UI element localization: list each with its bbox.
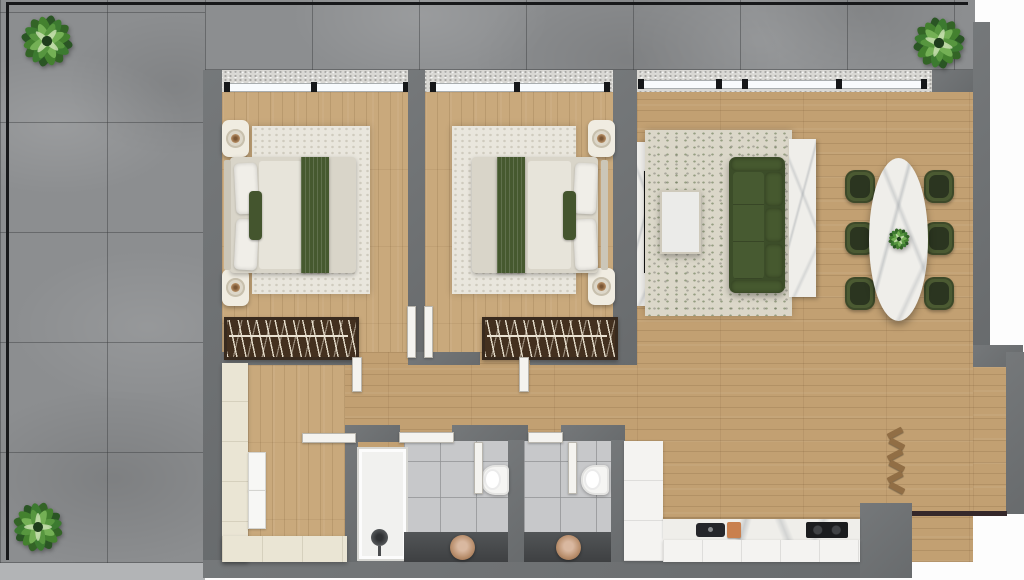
bathroom1-door [474, 442, 483, 494]
living-room-window [640, 80, 926, 89]
shower-stem [378, 546, 381, 556]
lamp-shade [597, 134, 606, 143]
chair-seat [850, 175, 870, 198]
chair-seat [929, 227, 949, 250]
ladder-plank [889, 460, 906, 473]
terrace-floor-left [0, 0, 205, 563]
wall-left [203, 70, 222, 562]
chair-seat [929, 175, 949, 198]
bedroom2-nightstand-bottom [588, 268, 615, 305]
ladder-plank [889, 482, 906, 495]
window-frame-mark [311, 82, 317, 92]
wall-bedrooms-bottom-mid [408, 352, 480, 365]
bedroom1-door [352, 357, 362, 392]
terrace-plant-top-right [908, 12, 970, 74]
dining-table-plant [886, 226, 912, 252]
dining-chair [845, 170, 875, 203]
dining-chair [924, 170, 954, 203]
window-frame-mark [638, 79, 644, 89]
toilet-seat [584, 469, 601, 490]
wardrobe-rail [229, 335, 348, 337]
toilet-seat [484, 469, 501, 490]
window-frame-mark [224, 82, 230, 92]
window-frame-mark [514, 82, 520, 92]
bedroom1-door-open [407, 306, 416, 358]
bedroom2-door [519, 357, 529, 392]
window-frame-mark [742, 79, 748, 89]
lamp-shade [231, 283, 240, 292]
decor-ladder [885, 430, 909, 500]
shower-head [371, 529, 388, 546]
chair-seat [929, 282, 949, 305]
bedroom1-nightstand-top [222, 120, 249, 157]
wall-right-lower [1006, 352, 1024, 514]
bedroom1-duvet [259, 161, 302, 269]
hall-cabinet-vertical [222, 363, 248, 562]
bedroom2-window [430, 83, 610, 92]
bedroom2-pillow [573, 218, 599, 270]
sofa-armrest-top [731, 158, 783, 171]
window-frame-mark [430, 82, 436, 92]
wall-bath-divider [508, 440, 524, 562]
wall-right-upper [973, 22, 990, 352]
lamp-shade [231, 134, 240, 143]
bedroom1-accent-pillow [249, 191, 262, 240]
terrace-railing-top [6, 2, 968, 5]
sofa-back-cushion [765, 208, 783, 242]
window-bottom-right [912, 511, 1007, 516]
terrace-railing-left [6, 2, 9, 560]
bathroom1-sink [450, 535, 475, 560]
bedroom2-accent-pillow [563, 191, 576, 240]
dining-chair [924, 277, 954, 310]
terrace-sidewalk [0, 563, 205, 580]
dining-chair [845, 277, 875, 310]
window-frame-mark [921, 79, 927, 89]
kitchen-cooktop [806, 522, 848, 538]
terrace-plant-bottom-left [8, 497, 68, 557]
bedroom2-headboard [601, 160, 608, 270]
hall-appliance [248, 452, 266, 491]
bedroom2-door-open [424, 306, 433, 358]
sofa-back-cushion [765, 172, 783, 206]
wall-kitchen-right [860, 503, 912, 578]
bathroom1-toilet [481, 465, 509, 495]
wall-bath2-right [611, 440, 625, 562]
kitchen-base-cabinets [663, 540, 860, 562]
chair-seat [850, 282, 870, 305]
hall-appliance [248, 490, 266, 529]
window-frame-mark [604, 82, 610, 92]
sofa-seat-cushions [733, 172, 764, 279]
window-frame-mark [716, 79, 722, 89]
sofa-back-cushion [765, 244, 783, 278]
sofa-back-console [789, 139, 816, 297]
kitchen-faucet [708, 527, 713, 532]
sofa-armrest-bottom [731, 280, 783, 293]
lamp-shade [597, 282, 606, 291]
bathroom2-door [568, 442, 577, 494]
coffee-table [660, 190, 701, 254]
kitchen-sink [696, 523, 725, 537]
hall-cabinet-bottom [222, 536, 347, 562]
bedroom1-headboard [224, 160, 231, 270]
ladder-plank [889, 438, 906, 451]
floor-right-extension [973, 352, 1007, 512]
chair-seat [850, 227, 870, 250]
bedroom1-green-throw [301, 157, 329, 273]
ladder-plank [887, 471, 904, 484]
bedroom2-pillow [573, 162, 599, 214]
bedroom2-wardrobe [482, 317, 618, 360]
kitchen-cutting-board [727, 522, 741, 538]
terrace-floor-top [205, 0, 975, 70]
window-frame-mark [836, 79, 842, 89]
wall-bottom [203, 560, 912, 578]
dining-chair [924, 222, 954, 255]
bedroom1-wardrobe [224, 317, 359, 360]
bedroom2-green-throw [497, 157, 525, 273]
wardrobe-rail [487, 335, 607, 337]
ladder-plank [887, 449, 904, 462]
bathroom2-sink [556, 535, 581, 560]
bedroom1-nightstand-bottom [222, 269, 249, 306]
kitchen-tall-cabinet [624, 441, 663, 561]
bathroom2-door-open [528, 432, 563, 443]
bedroom1-window [226, 83, 408, 92]
bathroom1-door-open [399, 432, 454, 443]
floor-plan [0, 0, 1024, 580]
hall-door-open [302, 433, 356, 443]
bedroom2-nightstand-top [588, 120, 615, 157]
terrace-plant-top-left [16, 10, 78, 72]
bathroom2-toilet [581, 465, 609, 495]
